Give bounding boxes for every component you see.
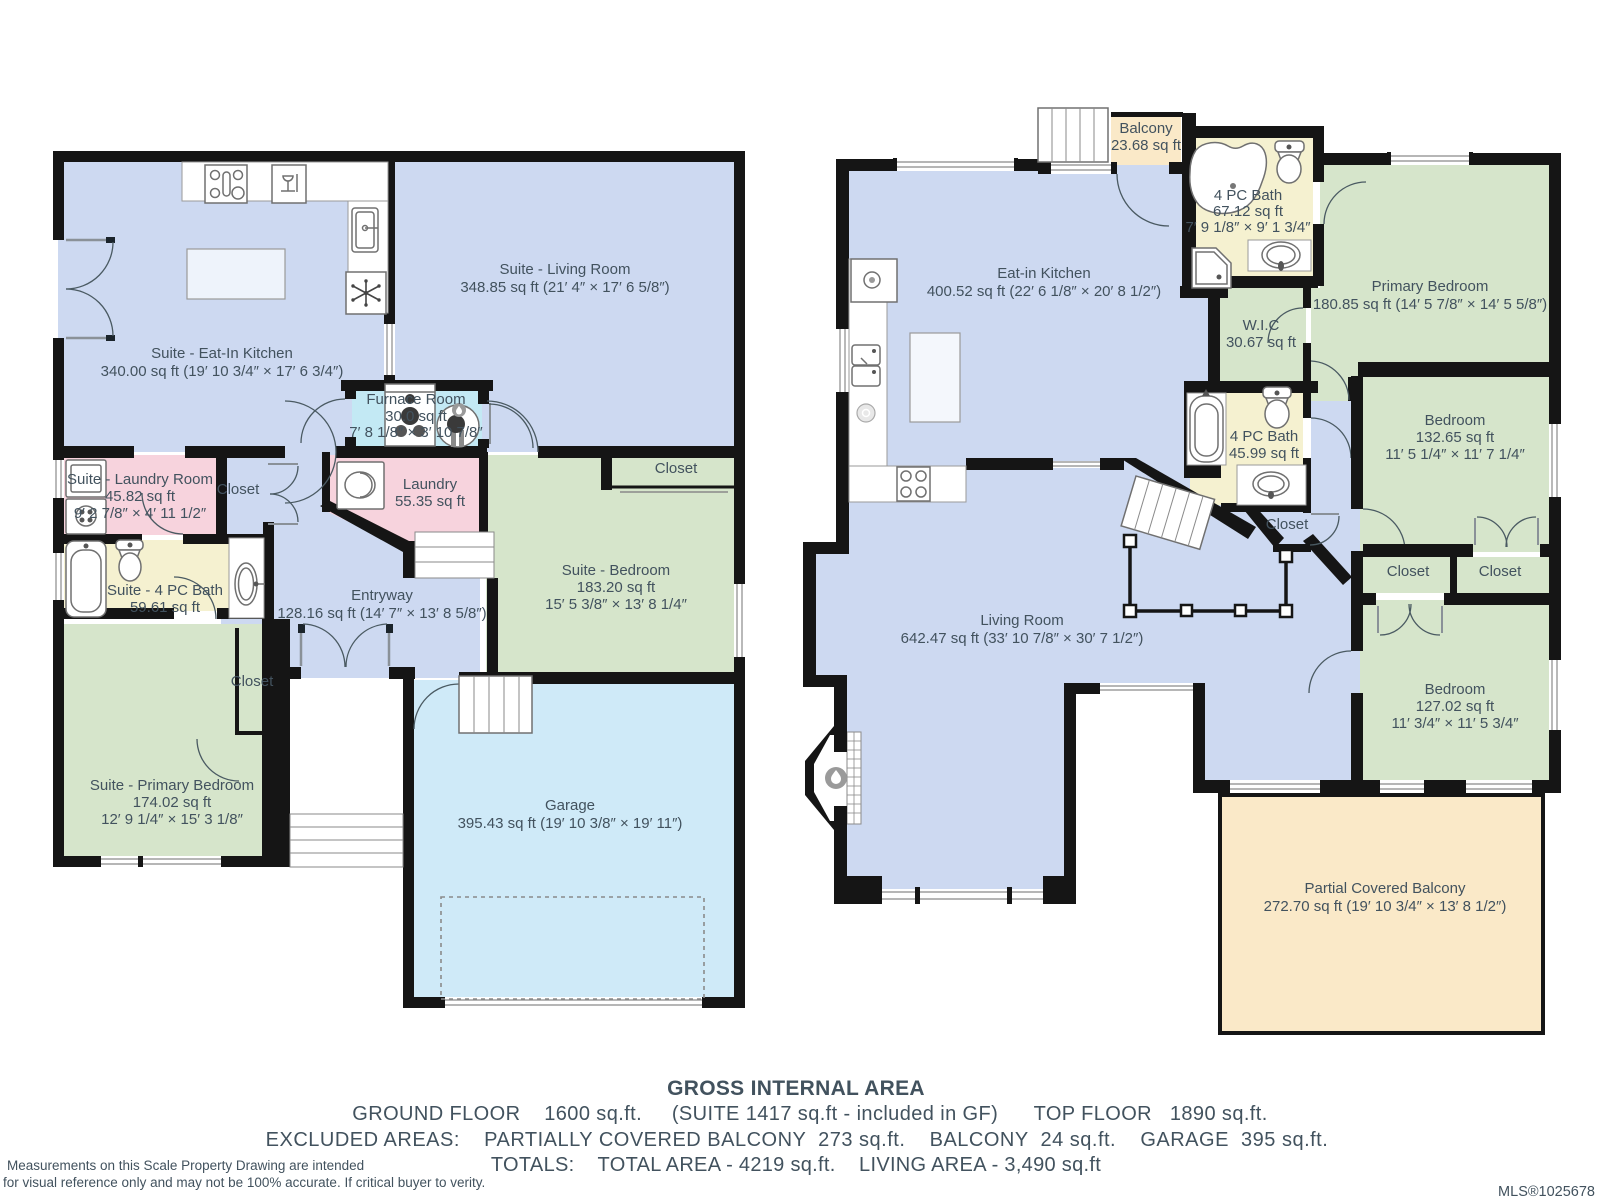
- svg-text:55.35 sq ft: 55.35 sq ft: [395, 493, 466, 510]
- svg-text:Furnace Room: Furnace Room: [366, 391, 465, 408]
- svg-text:180.85 sq ft (14′ 5 7/8″ × 14′: 180.85 sq ft (14′ 5 7/8″ × 14′ 5 5/8″): [1313, 296, 1547, 313]
- svg-text:Balcony: Balcony: [1119, 120, 1173, 137]
- svg-text:23.68 sq ft: 23.68 sq ft: [1111, 137, 1182, 154]
- svg-text:W.I.C: W.I.C: [1243, 317, 1280, 334]
- svg-text:340.00 sq ft (19′ 10 3/4″ × 17: 340.00 sq ft (19′ 10 3/4″ × 17′ 6 3/4″): [101, 363, 344, 380]
- svg-text:Closet: Closet: [1387, 563, 1430, 580]
- svg-text:132.65 sq ft: 132.65 sq ft: [1416, 429, 1495, 446]
- svg-text:Primary Bedroom: Primary Bedroom: [1372, 278, 1489, 295]
- svg-text:Bedroom: Bedroom: [1425, 681, 1486, 698]
- svg-text:Suite - Living Room: Suite - Living Room: [500, 261, 631, 278]
- svg-text:GROUND FLOOR 1600 sq.ft.: GROUND FLOOR 1600 sq.ft. (SUITE 1417 sq.…: [352, 1103, 1267, 1125]
- svg-text:GROSS INTERNAL AREA: GROSS INTERNAL AREA: [667, 1077, 925, 1100]
- svg-text:Suite - Bedroom: Suite - Bedroom: [562, 562, 670, 579]
- svg-text:Living Room: Living Room: [980, 612, 1063, 629]
- svg-text:45.82 sq ft: 45.82 sq ft: [105, 488, 176, 505]
- svg-text:12′ 9 1/4″ × 15′ 3 1/8″: 12′ 9 1/4″ × 15′ 3 1/8″: [101, 811, 243, 828]
- svg-text:30.67 sq ft: 30.67 sq ft: [1226, 334, 1297, 351]
- svg-text:348.85 sq ft (21′ 4″ × 17′ 6 5: 348.85 sq ft (21′ 4″ × 17′ 6 5/8″): [460, 279, 669, 296]
- svg-text:EXCLUDED AREAS: PARTIALLY C: EXCLUDED AREAS: PARTIALLY COVERED BALCON…: [266, 1129, 1329, 1151]
- svg-text:Closet: Closet: [217, 481, 260, 498]
- svg-text:174.02 sq ft: 174.02 sq ft: [133, 794, 212, 811]
- svg-text:Laundry: Laundry: [403, 476, 458, 493]
- svg-text:Garage: Garage: [545, 797, 595, 814]
- svg-text:Closet: Closet: [1266, 516, 1309, 533]
- svg-text:Suite - Eat-In Kitchen: Suite - Eat-In Kitchen: [151, 345, 293, 362]
- svg-text:15′ 5 3/8″ × 13′ 8 1/4″: 15′ 5 3/8″ × 13′ 8 1/4″: [545, 596, 687, 613]
- svg-text:642.47 sq ft (33′ 10 7/8″ × 30: 642.47 sq ft (33′ 10 7/8″ × 30′ 7 1/2″): [901, 630, 1144, 647]
- svg-text:Closet: Closet: [1479, 563, 1522, 580]
- svg-text:Closet: Closet: [231, 673, 274, 690]
- svg-text:7′ 9 1/8″ × 9′ 1 3/4″: 7′ 9 1/8″ × 9′ 1 3/4″: [1185, 219, 1311, 236]
- svg-text:7′ 8 1/8″ × 3′ 10 7/8″: 7′ 8 1/8″ × 3′ 10 7/8″: [349, 424, 483, 441]
- svg-text:67.12 sq ft: 67.12 sq ft: [1213, 203, 1284, 220]
- svg-text:183.20 sq ft: 183.20 sq ft: [577, 579, 656, 596]
- svg-text:Suite - Primary Bedroom: Suite - Primary Bedroom: [90, 777, 254, 794]
- svg-text:Closet: Closet: [655, 460, 698, 477]
- svg-text:400.52 sq ft (22′ 6 1/8″ × 20′: 400.52 sq ft (22′ 6 1/8″ × 20′ 8 1/2″): [927, 283, 1161, 300]
- svg-text:45.99 sq ft: 45.99 sq ft: [1229, 445, 1300, 462]
- svg-text:128.16 sq ft (14′ 7″ × 13′ 8 5: 128.16 sq ft (14′ 7″ × 13′ 8 5/8″): [277, 605, 486, 622]
- svg-text:Suite - Laundry Room: Suite - Laundry Room: [67, 471, 213, 488]
- svg-text:for visual reference only and: for visual reference only and may not be…: [3, 1175, 485, 1190]
- svg-text:Bedroom: Bedroom: [1425, 412, 1486, 429]
- svg-text:4 PC Bath: 4 PC Bath: [1230, 428, 1298, 445]
- svg-text:11′ 3/4″ × 11′ 5 3/4″: 11′ 3/4″ × 11′ 5 3/4″: [1391, 715, 1519, 732]
- svg-text:Partial Covered Balcony: Partial Covered Balcony: [1305, 880, 1466, 897]
- svg-text:272.70 sq ft (19′ 10 3/4″ × 13: 272.70 sq ft (19′ 10 3/4″ × 13′ 8 1/2″): [1264, 898, 1507, 915]
- svg-text:395.43 sq ft (19′ 10 3/8″ × 19: 395.43 sq ft (19′ 10 3/8″ × 19′ 11″): [458, 815, 683, 832]
- svg-text:Eat-in Kitchen: Eat-in Kitchen: [997, 265, 1090, 282]
- svg-text:4 PC Bath: 4 PC Bath: [1214, 187, 1282, 204]
- svg-text:MLS®1025678: MLS®1025678: [1498, 1184, 1595, 1199]
- svg-text:TOTALS: TOTAL AREA - 4219 s: TOTALS: TOTAL AREA - 4219 sq.ft. LIVING …: [491, 1154, 1101, 1176]
- svg-text:30.0 sq ft: 30.0 sq ft: [385, 408, 448, 425]
- svg-text:11′ 5 1/4″ × 11′ 7 1/4″: 11′ 5 1/4″ × 11′ 7 1/4″: [1385, 446, 1525, 463]
- svg-text:59.61 sq ft: 59.61 sq ft: [130, 599, 201, 616]
- svg-text:127.02 sq ft: 127.02 sq ft: [1416, 698, 1495, 715]
- svg-text:Measurements on this Scale Pro: Measurements on this Scale Property Draw…: [7, 1158, 364, 1173]
- svg-text:Entryway: Entryway: [351, 587, 413, 604]
- svg-text:Suite - 4 PC Bath: Suite - 4 PC Bath: [107, 582, 223, 599]
- svg-text:9′ 2 7/8″ × 4′ 11 1/2″: 9′ 2 7/8″ × 4′ 11 1/2″: [74, 505, 207, 522]
